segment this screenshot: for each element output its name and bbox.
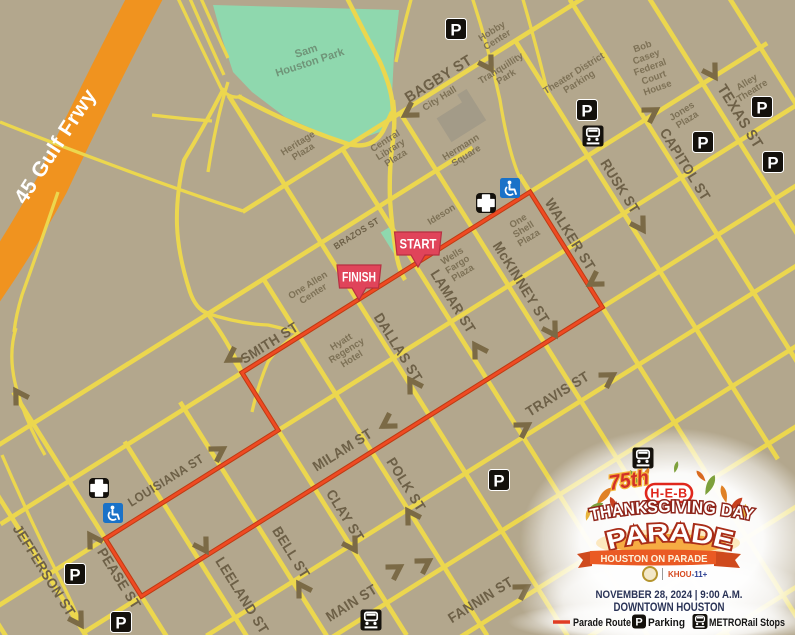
- svg-text:P: P: [69, 566, 80, 585]
- svg-text:Parade Route: Parade Route: [573, 617, 631, 629]
- svg-text:DOWNTOWN HOUSTON: DOWNTOWN HOUSTON: [614, 600, 725, 614]
- svg-text:START: START: [400, 237, 437, 252]
- svg-text:Parking: Parking: [648, 617, 685, 629]
- svg-text:P: P: [756, 99, 767, 118]
- svg-text:METRORail Stops: METRORail Stops: [709, 617, 785, 629]
- svg-text:FINISH: FINISH: [342, 270, 376, 285]
- svg-text:P: P: [697, 134, 708, 153]
- svg-text:P: P: [493, 472, 504, 491]
- svg-text:P: P: [115, 614, 126, 633]
- svg-text:P: P: [635, 617, 642, 629]
- svg-text:KHOU-11+: KHOU-11+: [668, 570, 708, 579]
- svg-text:HOUSTON ON PARADE: HOUSTON ON PARADE: [601, 554, 708, 565]
- svg-text:P: P: [450, 21, 461, 40]
- svg-text:P: P: [581, 102, 592, 121]
- svg-text:P: P: [767, 154, 778, 173]
